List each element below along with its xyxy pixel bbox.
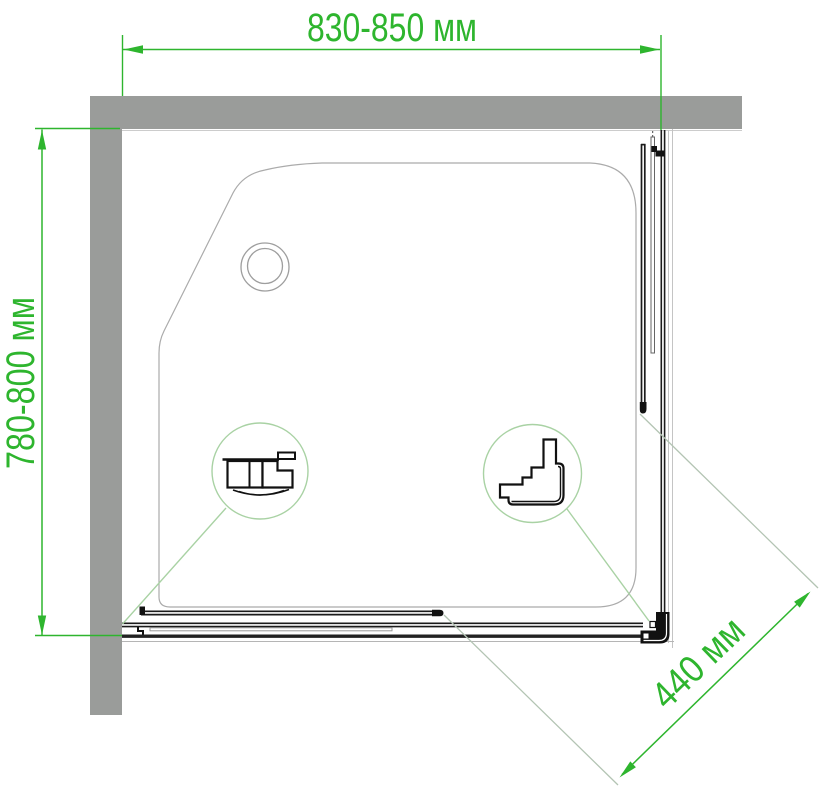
leader-line-right bbox=[567, 509, 649, 621]
frame-outer-boundary bbox=[122, 129, 674, 648]
sliding-glass-door-bottom bbox=[141, 611, 432, 614]
shower-enclosure-drawing: 830-850 мм 780-800 мм 440 мм bbox=[0, 0, 830, 800]
fixed-glass-panel-right bbox=[651, 137, 655, 353]
right-door-assembly bbox=[640, 130, 665, 615]
fixed-glass-panel-bottom bbox=[150, 628, 392, 631]
arrowhead-top bbox=[38, 130, 46, 150]
corner-connector-profile-section-icon bbox=[500, 440, 564, 505]
left-wall bbox=[90, 96, 122, 715]
bottom-track-lines bbox=[122, 623, 643, 626]
dimension-door-opening: 440 мм bbox=[444, 414, 818, 785]
shower-tray-outline bbox=[159, 163, 636, 607]
sliding-glass-door-right bbox=[641, 144, 646, 404]
depth-dimension-label: 780-800 мм bbox=[0, 297, 43, 469]
door-end-hook-left bbox=[140, 607, 146, 616]
top-wall bbox=[90, 96, 742, 129]
extension-line bbox=[444, 615, 618, 785]
door-handle-edge-cap-right bbox=[640, 402, 647, 414]
technical-drawing-svg: 830-850 мм 780-800 мм 440 мм bbox=[0, 0, 830, 800]
extension-line bbox=[640, 414, 818, 588]
drain-icon bbox=[241, 243, 289, 291]
wall-mount-profile-section-icon bbox=[223, 453, 296, 496]
bottom-door-assembly bbox=[122, 607, 650, 637]
detail-callouts bbox=[123, 423, 650, 624]
door-handle-edge-cap-bottom bbox=[432, 610, 444, 617]
width-dimension-label: 830-850 мм bbox=[307, 6, 477, 50]
right-frame-profile-lines bbox=[661, 130, 664, 615]
corner-connector-piece bbox=[641, 612, 670, 644]
arrowhead-bottom bbox=[38, 616, 46, 636]
arrowhead-right bbox=[640, 45, 660, 53]
arrowhead-left bbox=[124, 45, 144, 53]
